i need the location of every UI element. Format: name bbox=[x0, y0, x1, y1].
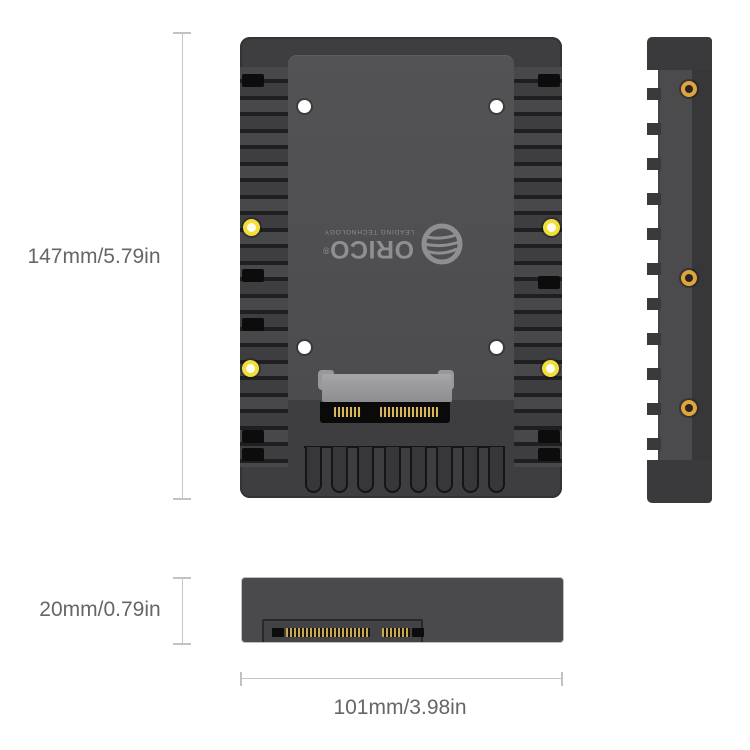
gold-screw-icon bbox=[243, 219, 260, 236]
product-dimension-diagram: 147mm/5.79in 20mm/0.79in 101mm/3.98in bbox=[0, 0, 750, 750]
width-dimension-line bbox=[241, 678, 562, 679]
dimension-cap bbox=[173, 498, 191, 500]
width-dimension-label: 101mm/3.98in bbox=[327, 696, 473, 720]
vent-slot bbox=[242, 448, 264, 461]
sata-connector bbox=[320, 402, 450, 423]
gold-screw-icon bbox=[242, 360, 259, 377]
vent-slot bbox=[242, 430, 264, 443]
vent-slot bbox=[242, 269, 264, 282]
vent-finger-slot bbox=[462, 447, 479, 493]
bottom-view bbox=[242, 578, 563, 642]
sata-data-pins bbox=[334, 407, 361, 417]
vent-finger-slot bbox=[384, 447, 401, 493]
vent-slot bbox=[242, 318, 264, 331]
vent-slot bbox=[538, 74, 560, 87]
side-fin-teeth bbox=[647, 88, 661, 460]
height-dimension-line bbox=[182, 33, 183, 499]
side-top-block bbox=[647, 37, 712, 70]
white-screw-hole-icon bbox=[298, 341, 311, 354]
connector-tab bbox=[272, 628, 284, 637]
sata-power-pins bbox=[380, 407, 438, 417]
connector-tab bbox=[412, 628, 424, 637]
vent-finger-slot bbox=[488, 447, 505, 493]
gold-screw-icon bbox=[681, 270, 697, 286]
sata-power-pins bbox=[286, 628, 370, 637]
height-dimension-label: 147mm/5.79in bbox=[24, 245, 164, 269]
sata-data-pins bbox=[382, 628, 410, 637]
orico-globe-icon bbox=[420, 222, 464, 266]
front-view: ORICO® LEADING TECHNOLOGY bbox=[240, 37, 562, 498]
fins-pattern bbox=[240, 67, 288, 467]
thickness-dimension-line bbox=[182, 578, 183, 644]
gold-screw-icon bbox=[681, 81, 697, 97]
white-screw-hole-icon bbox=[490, 100, 503, 113]
side-spine bbox=[692, 37, 712, 503]
gold-screw-icon bbox=[542, 360, 559, 377]
fins-pattern bbox=[514, 67, 562, 467]
sata-connector-bracket bbox=[322, 374, 452, 402]
dimension-cap bbox=[561, 672, 563, 686]
vent-finger-slot bbox=[305, 447, 322, 493]
thickness-dimension-label: 20mm/0.79in bbox=[30, 598, 170, 622]
vent-slot bbox=[242, 74, 264, 87]
vent-slot bbox=[538, 448, 560, 461]
dimension-cap bbox=[240, 672, 242, 686]
white-screw-hole-icon bbox=[490, 341, 503, 354]
white-screw-hole-icon bbox=[298, 100, 311, 113]
gold-screw-icon bbox=[543, 219, 560, 236]
side-bottom-block bbox=[647, 460, 712, 503]
vent-finger-slot bbox=[410, 447, 427, 493]
left-heatsink-rail bbox=[240, 37, 288, 498]
logo-brand: ORICO bbox=[330, 235, 414, 263]
vent-slot bbox=[538, 276, 560, 289]
gold-screw-icon bbox=[681, 400, 697, 416]
vent-finger-slot bbox=[436, 447, 453, 493]
dimension-cap bbox=[173, 643, 191, 645]
vent-finger-slot bbox=[331, 447, 348, 493]
logo-text: ORICO® LEADING TECHNOLOGY bbox=[323, 227, 414, 261]
orico-logo: ORICO® LEADING TECHNOLOGY bbox=[332, 217, 464, 271]
side-view bbox=[644, 37, 712, 503]
vent-finger-slot bbox=[357, 447, 374, 493]
right-heatsink-rail bbox=[514, 37, 562, 498]
vent-slot bbox=[538, 430, 560, 443]
registered-mark: ® bbox=[323, 245, 330, 255]
logo-tagline: LEADING TECHNOLOGY bbox=[323, 227, 414, 234]
